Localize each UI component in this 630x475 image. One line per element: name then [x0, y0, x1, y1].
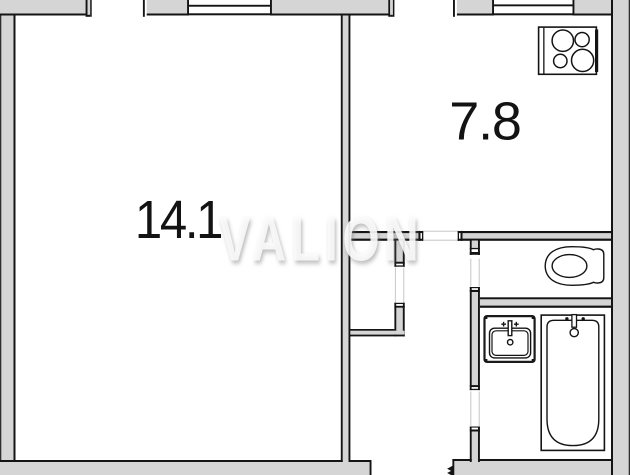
svg-text:14.1: 14.1: [135, 189, 222, 250]
svg-text:VALION: VALION: [219, 203, 424, 274]
svg-text:7.8: 7.8: [449, 92, 520, 152]
